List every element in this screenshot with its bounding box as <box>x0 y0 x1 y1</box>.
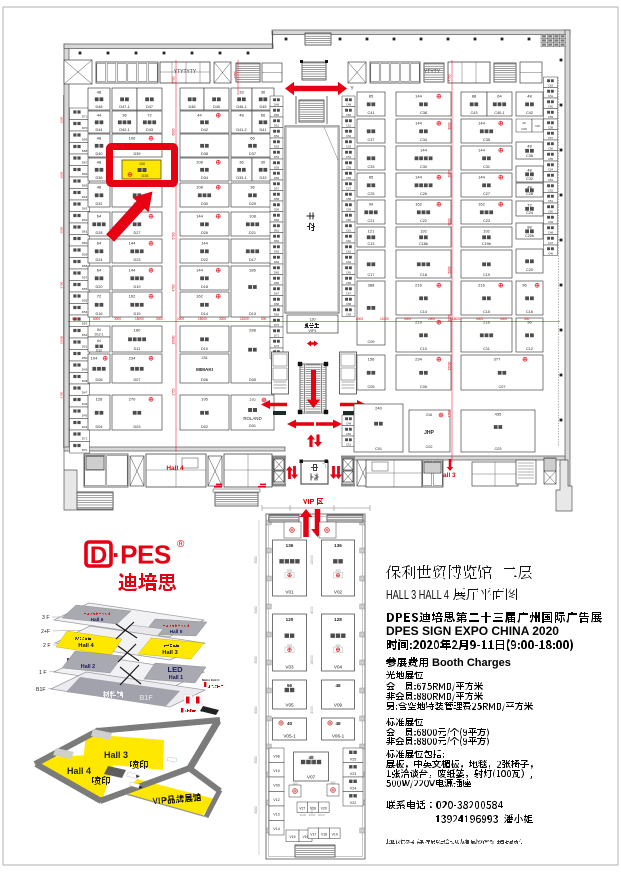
svg-text:108: 108 <box>196 159 203 164</box>
svg-text:500: 500 <box>261 317 267 321</box>
svg-text:ROLAND: ROLAND <box>243 416 261 421</box>
svg-text:C50: C50 <box>548 209 553 213</box>
svg-text:C59: C59 <box>346 207 351 211</box>
svg-text:V01: V01 <box>285 590 294 595</box>
svg-text:C47: C47 <box>548 241 553 245</box>
svg-text:D64: D64 <box>274 260 279 264</box>
svg-text:85: 85 <box>369 174 374 179</box>
svg-text:195: 195 <box>201 396 208 401</box>
svg-text:C48: C48 <box>548 230 553 234</box>
svg-text:D63: D63 <box>274 249 279 253</box>
svg-text:YTYTYTY: YTYTYTY <box>174 69 197 75</box>
svg-text:18000: 18000 <box>452 317 461 321</box>
svg-text:V09: V09 <box>334 703 343 708</box>
svg-text:72: 72 <box>527 202 532 207</box>
svg-text:C13: C13 <box>368 242 375 246</box>
svg-text:128: 128 <box>334 617 342 622</box>
svg-text:D63: D63 <box>82 207 88 211</box>
svg-text:C19: C19 <box>483 273 490 277</box>
svg-text:C22: C22 <box>420 219 427 223</box>
svg-text:C21: C21 <box>368 219 375 223</box>
svg-text:C59: C59 <box>548 115 553 119</box>
svg-text:3000: 3000 <box>500 317 507 321</box>
svg-text:C35: C35 <box>483 138 490 142</box>
svg-text:Hall 5: Hall 5 <box>170 629 183 635</box>
svg-text:D60: D60 <box>274 218 279 222</box>
svg-text:48: 48 <box>239 112 244 117</box>
svg-text:D72: D72 <box>274 344 279 348</box>
svg-text:D55: D55 <box>274 165 279 169</box>
svg-text:216: 216 <box>426 413 432 417</box>
svg-text:120: 120 <box>286 617 294 622</box>
svg-text:D29: D29 <box>249 202 256 206</box>
svg-text:8000: 8000 <box>448 122 452 129</box>
svg-text:B1F: B1F <box>36 687 46 693</box>
svg-text:64: 64 <box>97 267 102 272</box>
svg-text:3000: 3000 <box>254 756 258 763</box>
svg-text:30: 30 <box>261 159 266 164</box>
svg-text:48: 48 <box>97 184 102 189</box>
svg-text:C49: C49 <box>346 421 351 425</box>
svg-text:D46: D46 <box>82 402 88 406</box>
svg-text:D53: D53 <box>274 144 279 148</box>
svg-text:234: 234 <box>129 355 136 360</box>
svg-text:66: 66 <box>250 135 255 140</box>
svg-text:C31: C31 <box>483 165 490 169</box>
svg-text:C23: C23 <box>483 219 490 223</box>
svg-text:C01: C01 <box>375 447 382 451</box>
svg-text:D62: D62 <box>82 218 88 222</box>
svg-text:D04: D04 <box>96 425 103 429</box>
svg-text:162: 162 <box>478 201 485 206</box>
svg-text:D20: D20 <box>96 285 103 289</box>
svg-text:D71: D71 <box>82 437 88 441</box>
svg-text:36: 36 <box>250 184 255 189</box>
svg-text:D46: D46 <box>189 105 196 109</box>
svg-text:C05: C05 <box>368 385 375 389</box>
svg-text:D33: D33 <box>260 176 267 180</box>
svg-text:2+F: 2+F <box>41 629 50 635</box>
svg-text:D23: D23 <box>134 258 141 262</box>
svg-text:C51: C51 <box>548 199 553 203</box>
svg-text:D56: D56 <box>274 176 279 180</box>
svg-text:D35: D35 <box>142 174 149 178</box>
svg-text:D51: D51 <box>82 345 88 349</box>
svg-text:C43: C43 <box>471 111 478 115</box>
svg-text:D66: D66 <box>82 172 88 176</box>
svg-text:D57: D57 <box>274 186 279 190</box>
svg-text:V22: V22 <box>350 801 356 805</box>
svg-text:D43: D43 <box>146 128 153 132</box>
svg-text:C54: C54 <box>346 155 351 159</box>
svg-text:C26: C26 <box>420 192 427 196</box>
svg-text:D54: D54 <box>82 310 88 314</box>
svg-text:216: 216 <box>415 282 422 287</box>
svg-text:144: 144 <box>196 213 203 218</box>
svg-text:V17: V17 <box>310 833 316 837</box>
svg-text:6000: 6000 <box>59 171 63 178</box>
svg-text:C30: C30 <box>420 165 427 169</box>
svg-text:C46: C46 <box>548 251 553 255</box>
svg-text:88: 88 <box>527 224 532 229</box>
svg-text:C54: C54 <box>548 167 553 171</box>
svg-text:Hall 3: Hall 3 <box>162 650 178 656</box>
svg-text:D68: D68 <box>82 149 88 153</box>
svg-text:D68: D68 <box>274 302 279 306</box>
svg-text:D32: D32 <box>96 202 103 206</box>
svg-text:48: 48 <box>97 159 102 164</box>
svg-text:V09: V09 <box>273 784 279 788</box>
svg-text:D52: D52 <box>82 333 88 337</box>
svg-text:D54: D54 <box>274 155 279 159</box>
svg-text:192: 192 <box>483 228 490 233</box>
svg-text:3000: 3000 <box>254 656 258 663</box>
svg-text:D18: D18 <box>201 285 208 289</box>
svg-text:15000: 15000 <box>59 335 63 344</box>
svg-text:V05-1: V05-1 <box>283 734 296 739</box>
svg-text:4000: 4000 <box>310 606 314 614</box>
svg-text:DPES SIGN EXPO CHINA 2020: DPES SIGN EXPO CHINA 2020 <box>386 624 559 638</box>
svg-text:11500: 11500 <box>240 317 249 321</box>
svg-text:C32: C32 <box>526 177 533 181</box>
svg-text:D45: D45 <box>260 105 267 109</box>
svg-text:3000: 3000 <box>476 317 483 321</box>
svg-text:C50: C50 <box>346 113 351 117</box>
svg-text:C57: C57 <box>346 186 351 190</box>
svg-text:144: 144 <box>420 147 427 152</box>
svg-text:136: 136 <box>334 543 342 548</box>
svg-text:V23: V23 <box>350 772 356 776</box>
svg-text:2020: 2020 <box>335 645 341 647</box>
svg-text:216: 216 <box>478 282 485 287</box>
svg-text:V19: V19 <box>332 833 338 837</box>
svg-text:D41-2: D41-2 <box>236 128 246 132</box>
svg-text:2500: 2500 <box>428 317 435 321</box>
svg-text:V06-1: V06-1 <box>332 734 345 739</box>
svg-text:144: 144 <box>415 93 422 98</box>
svg-text:96: 96 <box>522 282 527 287</box>
svg-text:C61: C61 <box>548 94 553 98</box>
svg-text:36: 36 <box>261 89 266 94</box>
svg-text:162: 162 <box>196 293 203 298</box>
svg-text:C69: C69 <box>346 312 351 316</box>
svg-text:C68: C68 <box>346 302 351 306</box>
svg-text:16000: 16000 <box>310 655 314 665</box>
svg-text:C20b: C20b <box>525 234 534 238</box>
svg-text:D47: D47 <box>146 105 153 109</box>
svg-text:56: 56 <box>287 683 293 688</box>
svg-text:8000: 8000 <box>448 314 452 321</box>
svg-text:C20: C20 <box>526 268 533 272</box>
svg-text:V16: V16 <box>302 835 308 839</box>
svg-text:VIP1: VIP1 <box>308 329 316 333</box>
svg-text:5700: 5700 <box>172 76 176 83</box>
svg-text:C42: C42 <box>526 111 533 115</box>
svg-text:C11: C11 <box>483 347 490 351</box>
svg-text:D48: D48 <box>96 105 103 109</box>
svg-text:C41: C41 <box>368 111 375 115</box>
svg-text:64: 64 <box>497 93 502 98</box>
svg-text:V03: V03 <box>285 665 294 670</box>
svg-text:D45: D45 <box>82 414 88 418</box>
svg-text:8000: 8000 <box>448 218 452 225</box>
svg-text:144: 144 <box>129 267 136 272</box>
svg-text:216: 216 <box>483 319 490 324</box>
svg-text:C56: C56 <box>548 146 553 150</box>
svg-text:Hall 4: Hall 4 <box>67 766 91 776</box>
svg-text:D61: D61 <box>274 228 279 232</box>
svg-text:V02: V02 <box>334 590 343 595</box>
svg-text:64: 64 <box>97 339 101 343</box>
svg-text:D39: D39 <box>134 152 141 156</box>
svg-text:D55: D55 <box>82 299 88 303</box>
svg-text:Hall 1: Hall 1 <box>169 675 183 681</box>
svg-text:C58: C58 <box>548 125 553 129</box>
svg-text:234: 234 <box>415 356 422 361</box>
svg-text:C49: C49 <box>346 102 351 106</box>
svg-text:C63: C63 <box>346 249 351 253</box>
svg-text:V04: V04 <box>334 665 343 670</box>
svg-text:3000: 3000 <box>156 317 163 321</box>
svg-text:144: 144 <box>478 174 485 179</box>
svg-text:D58: D58 <box>82 264 88 268</box>
svg-text:MIMAKI: MIMAKI <box>196 367 213 372</box>
svg-text:D48: D48 <box>82 379 88 383</box>
svg-text:270: 270 <box>129 396 136 401</box>
svg-text:144: 144 <box>415 174 422 179</box>
svg-text:C65: C65 <box>346 270 351 274</box>
svg-text:2020: 2020 <box>330 783 336 785</box>
svg-text:33: 33 <box>239 89 244 94</box>
svg-text:192: 192 <box>420 228 427 233</box>
svg-text:2020: 2020 <box>287 645 293 647</box>
svg-text:·PES: ·PES <box>112 540 171 570</box>
svg-text:D60: D60 <box>82 241 88 245</box>
svg-text:D57: D57 <box>82 276 88 280</box>
svg-text:C66: C66 <box>346 281 351 285</box>
svg-text:V27: V27 <box>299 807 305 811</box>
svg-text:C16: C16 <box>526 310 533 314</box>
svg-text:C58: C58 <box>346 197 351 201</box>
svg-text:108: 108 <box>249 213 256 218</box>
svg-text:®: ® <box>177 539 185 550</box>
svg-text:D51: D51 <box>274 123 279 127</box>
svg-text:C29: C29 <box>521 127 527 131</box>
svg-text:D12-1: D12-1 <box>95 333 104 337</box>
svg-text:3000: 3000 <box>254 556 258 563</box>
svg-text:2750: 2750 <box>59 391 63 398</box>
svg-text:D42: D42 <box>201 128 208 132</box>
svg-text:2750: 2750 <box>172 388 176 395</box>
svg-text:C61: C61 <box>346 228 351 232</box>
svg-text:435: 435 <box>495 411 502 416</box>
svg-text:15000: 15000 <box>172 335 176 344</box>
svg-text:D21: D21 <box>249 231 256 235</box>
svg-text:V10: V10 <box>273 769 279 773</box>
svg-text:C55: C55 <box>548 157 553 161</box>
svg-text:D49: D49 <box>274 102 279 106</box>
svg-text:C56: C56 <box>346 176 351 180</box>
svg-text:C02: C02 <box>426 445 433 449</box>
svg-text:156: 156 <box>368 356 375 361</box>
svg-text:3 F: 3 F <box>42 615 50 621</box>
svg-text:162: 162 <box>415 201 422 206</box>
svg-text:D08: D08 <box>96 378 103 382</box>
svg-text:3000: 3000 <box>219 317 226 321</box>
svg-text:D71: D71 <box>82 115 88 119</box>
svg-text:5700: 5700 <box>172 232 176 239</box>
svg-text:C53: C53 <box>346 144 351 148</box>
svg-text:20: 20 <box>522 121 526 125</box>
svg-text:72: 72 <box>97 293 102 298</box>
svg-text:88: 88 <box>472 93 477 98</box>
svg-text:66: 66 <box>261 112 266 117</box>
svg-text:C67: C67 <box>346 291 351 295</box>
svg-text:120: 120 <box>310 318 316 322</box>
svg-text:D47: D47 <box>82 391 88 395</box>
svg-text:C12: C12 <box>526 347 533 351</box>
svg-text:V14: V14 <box>273 827 279 831</box>
svg-text:D56: D56 <box>82 287 88 291</box>
svg-text:2020: 2020 <box>335 571 341 573</box>
svg-text:288: 288 <box>249 327 256 332</box>
svg-text:D66: D66 <box>274 281 279 285</box>
svg-text:13000: 13000 <box>310 555 314 565</box>
svg-text:D14: D14 <box>201 312 208 316</box>
svg-text:C53: C53 <box>548 178 553 182</box>
svg-text:44: 44 <box>97 112 102 117</box>
svg-text:D30: D30 <box>201 202 208 206</box>
svg-text:D65: D65 <box>274 270 279 274</box>
svg-text:1 F: 1 F <box>39 670 47 676</box>
svg-text:D17: D17 <box>249 258 256 262</box>
svg-text:D36: D36 <box>96 176 103 180</box>
svg-text:Hall 2: Hall 2 <box>81 664 95 670</box>
svg-text:104: 104 <box>91 355 98 360</box>
svg-text:D52: D52 <box>274 134 279 138</box>
svg-text:D24: D24 <box>96 258 103 262</box>
svg-text:YTYTY: YTYTY <box>424 69 441 75</box>
svg-text:D53: D53 <box>82 322 88 326</box>
svg-text:D07: D07 <box>134 378 141 382</box>
svg-text:64: 64 <box>97 213 102 218</box>
svg-text:D03: D03 <box>134 425 141 429</box>
svg-text:5000: 5000 <box>448 266 452 273</box>
svg-text:2020: 2020 <box>292 784 298 786</box>
svg-text:D70: D70 <box>274 323 279 327</box>
svg-text:5700: 5700 <box>59 281 63 288</box>
svg-text:Hall 3: Hall 3 <box>104 750 128 760</box>
svg-text:48: 48 <box>97 135 102 140</box>
svg-text:Hall 6: Hall 6 <box>91 617 104 623</box>
svg-text:D64: D64 <box>82 195 88 199</box>
svg-text:D15: D15 <box>134 312 141 316</box>
svg-text:500: 500 <box>524 317 530 321</box>
svg-text:C26: C26 <box>535 124 540 128</box>
svg-text:D44: D44 <box>96 128 103 132</box>
svg-text:C62: C62 <box>346 239 351 243</box>
svg-text:48: 48 <box>527 143 532 148</box>
svg-text:Booth Charges: Booth Charges <box>432 657 511 669</box>
svg-text:D62: D62 <box>274 239 279 243</box>
svg-text:84: 84 <box>97 328 101 332</box>
svg-text:136: 136 <box>286 543 294 548</box>
svg-text:48: 48 <box>527 167 532 172</box>
svg-text:D50: D50 <box>274 113 279 117</box>
svg-text:C62: C62 <box>548 83 553 87</box>
svg-text:D: D <box>90 542 107 569</box>
svg-text:234: 234 <box>202 356 208 360</box>
svg-text:D46-1: D46-1 <box>236 105 246 109</box>
svg-text:144: 144 <box>478 147 485 152</box>
svg-text:D61: D61 <box>82 230 88 234</box>
svg-text:36: 36 <box>239 159 244 164</box>
svg-text:4700: 4700 <box>172 284 176 291</box>
svg-text:15000: 15000 <box>448 361 452 370</box>
svg-text:6000: 6000 <box>172 128 176 135</box>
svg-text:6000: 6000 <box>254 706 258 713</box>
svg-text:C18: C18 <box>420 273 427 277</box>
svg-text:V25: V25 <box>350 758 356 762</box>
svg-text:D33-1: D33-1 <box>236 176 246 180</box>
svg-text:18000: 18000 <box>198 317 207 321</box>
svg-text:D42-1: D42-1 <box>119 128 129 132</box>
svg-text:2020: 2020 <box>287 571 293 573</box>
svg-text:6000: 6000 <box>254 806 258 813</box>
svg-text:85: 85 <box>369 93 374 98</box>
svg-text:D47-1: D47-1 <box>119 105 129 109</box>
svg-text:5000: 5000 <box>72 317 79 321</box>
svg-text:72: 72 <box>147 112 152 117</box>
svg-text:C14: C14 <box>420 310 427 314</box>
svg-text:D11: D11 <box>134 347 141 351</box>
svg-text:100: 100 <box>139 162 145 166</box>
svg-text:C33: C33 <box>368 165 375 169</box>
svg-text:3000: 3000 <box>310 706 314 714</box>
svg-text:185: 185 <box>249 267 256 272</box>
svg-text:C07: C07 <box>499 385 506 389</box>
svg-text:99: 99 <box>369 201 374 206</box>
svg-text:3000: 3000 <box>404 317 411 321</box>
svg-text:V07: V07 <box>307 775 316 780</box>
svg-text:D38: D38 <box>201 152 208 156</box>
svg-text:240: 240 <box>375 405 382 410</box>
svg-text:V29: V29 <box>321 807 327 811</box>
svg-text:D26: D26 <box>201 231 208 235</box>
svg-text:D44: D44 <box>82 425 88 429</box>
svg-text:D10: D10 <box>201 347 208 351</box>
svg-text:128: 128 <box>96 396 103 401</box>
svg-text:V12: V12 <box>273 798 279 802</box>
svg-text:144: 144 <box>478 120 485 125</box>
svg-text:270: 270 <box>250 398 256 402</box>
svg-text:D70: D70 <box>82 448 88 452</box>
svg-text:377: 377 <box>494 356 501 361</box>
svg-text:LED: LED <box>168 665 184 674</box>
svg-text:48: 48 <box>335 683 341 688</box>
svg-text:D34: D34 <box>201 176 208 180</box>
svg-text:108: 108 <box>196 184 203 189</box>
svg-text:8000: 8000 <box>356 317 363 321</box>
svg-text:D49: D49 <box>82 368 88 372</box>
svg-text:C28: C28 <box>526 192 533 196</box>
svg-text:15000: 15000 <box>310 755 314 765</box>
svg-text:D58: D58 <box>274 197 279 201</box>
svg-text:144: 144 <box>196 267 203 272</box>
svg-text:D67: D67 <box>82 161 88 165</box>
svg-text:3000: 3000 <box>114 317 121 321</box>
svg-text:C60: C60 <box>548 104 553 108</box>
